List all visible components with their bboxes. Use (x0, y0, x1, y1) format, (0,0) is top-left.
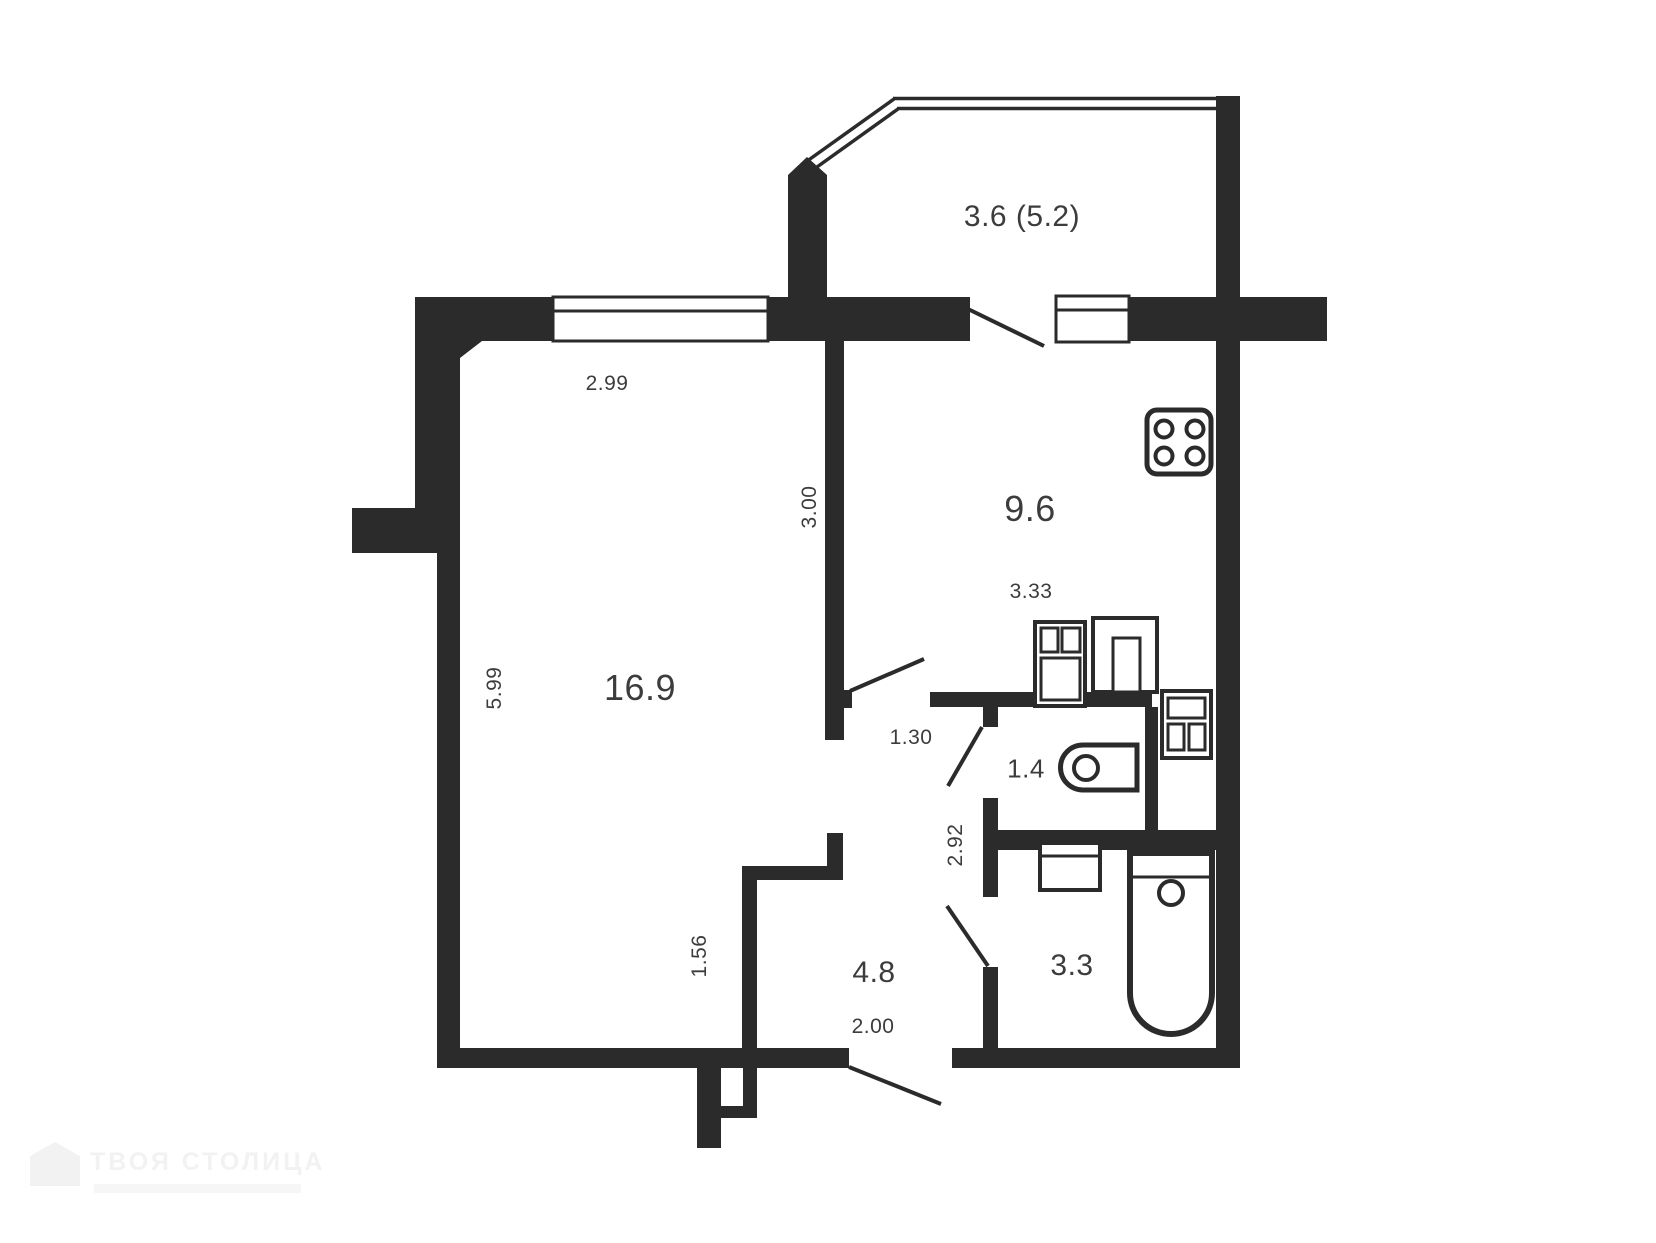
toilet-door-swing (948, 727, 982, 786)
hall-width-label: 2.00 (852, 1015, 895, 1039)
wall-segment (742, 866, 757, 1048)
wall-segment (742, 866, 843, 880)
kitchen-area-label: 9.6 (1004, 488, 1056, 530)
hall-area-label: 4.8 (852, 956, 895, 990)
wall-segment (1145, 707, 1158, 830)
balcony-door-swing (968, 309, 1044, 346)
floor-plan-drawing (0, 0, 1656, 1243)
bathtub-icon (1130, 853, 1212, 1034)
living-height-label: 5.99 (483, 667, 507, 710)
wall-segment (721, 1106, 757, 1118)
fixtures (1035, 410, 1212, 1034)
wall-segment (1216, 96, 1240, 1068)
kitchen-door-swing (850, 659, 924, 691)
balcony-area-label: 3.6 (5.2) (964, 200, 1080, 234)
kitchen-width-label: 3.00 (798, 486, 822, 529)
bathroom-door-swing (947, 906, 988, 966)
wall-segment (1129, 297, 1216, 341)
wall-segment (415, 297, 460, 508)
wall-corner-chamfer (460, 341, 482, 358)
hall-depth-label: 2.92 (944, 824, 968, 867)
entrance-door-swing (849, 1067, 941, 1104)
wall-segment (983, 707, 998, 727)
wall-segment (697, 1068, 721, 1148)
wall-segment (983, 830, 1240, 850)
glazing-line (803, 99, 894, 164)
bathroom-sink-icon (1040, 843, 1100, 890)
living-nook-label: 1.56 (688, 935, 712, 978)
toilet-icon (1061, 745, 1138, 790)
living-width-label: 2.99 (586, 372, 629, 396)
toilet-area-label: 1.4 (1007, 754, 1045, 785)
kitchen-window (1056, 296, 1129, 342)
balcony-glazing (803, 99, 1219, 173)
wall-segment (352, 508, 460, 553)
living-room-window (553, 297, 768, 341)
wall-segment (437, 1048, 849, 1068)
glazing-line (810, 109, 898, 172)
wall-segment (825, 341, 844, 740)
wall-balcony-column (788, 157, 827, 341)
wall-door-jamb (825, 690, 852, 708)
washer-icon (1162, 691, 1211, 758)
bathroom-area-label: 3.3 (1050, 949, 1093, 983)
floor-plan: 3.6 (5.2) 2.99 3.00 9.6 3.33 16.9 5.99 1… (0, 0, 1656, 1243)
wall-segment (437, 553, 460, 1068)
kitchen-sink-icon (1035, 622, 1085, 706)
wall-segment (983, 967, 998, 1048)
kitchen-depth-label: 3.33 (1010, 580, 1053, 604)
stove-icon (1147, 410, 1211, 474)
hall-door-width-label: 1.30 (890, 726, 933, 750)
wall-segment (952, 1048, 1240, 1068)
living-area-label: 16.9 (604, 667, 676, 709)
kitchen-cabinet-icon (1093, 618, 1157, 692)
wall-segment (1240, 297, 1327, 341)
